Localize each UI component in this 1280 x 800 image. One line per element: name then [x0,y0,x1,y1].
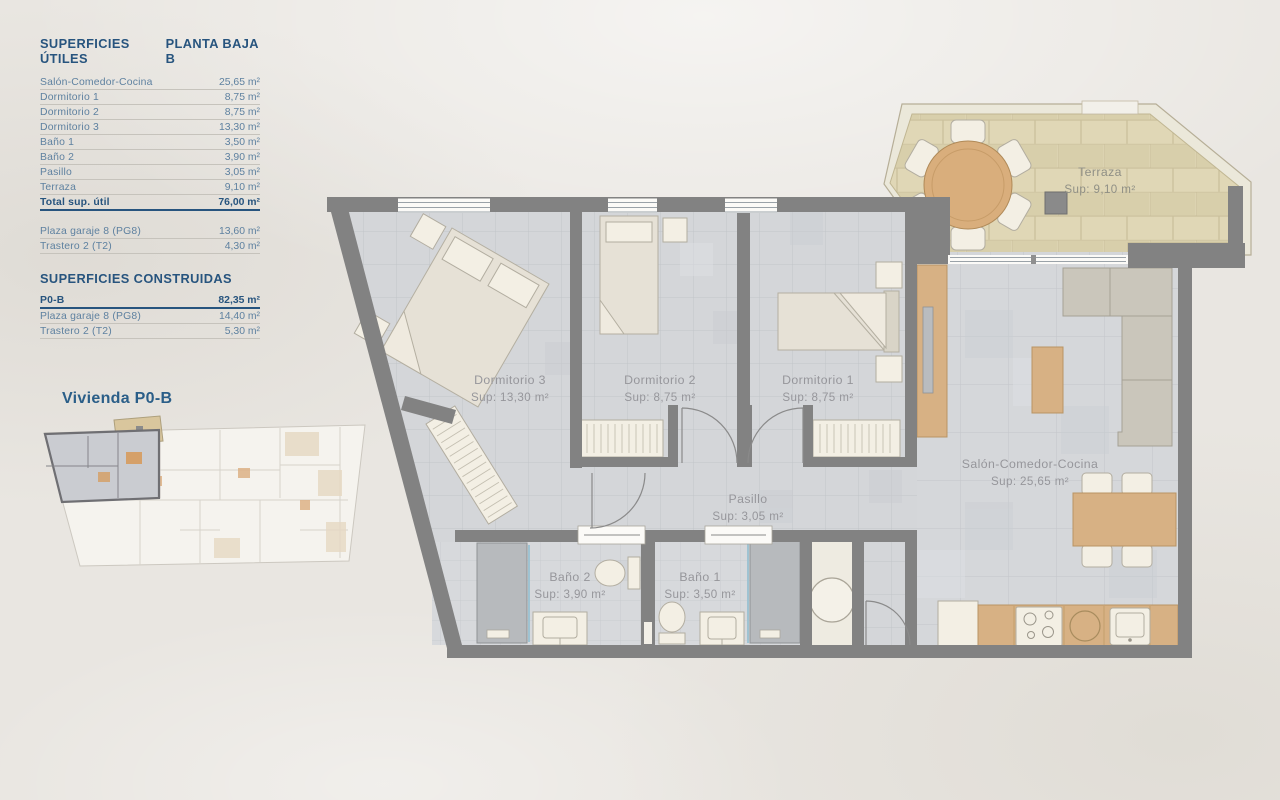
room-label-dormitorio1: Dormitorio 1 [782,373,854,387]
room-sup-salon: Sup: 25,65 m² [991,475,1069,488]
room-sup-bano1: Sup: 3,50 m² [664,588,735,601]
kitchen [938,601,1178,647]
toilet-bano2 [595,560,625,586]
wall-east [1178,252,1192,658]
wardrobe-dormitorio1 [813,420,900,457]
wall-terrace-south [1128,243,1245,268]
wall-dorm1-salon [905,210,917,467]
wall-entry-kitchen [905,530,917,658]
window-dorm3 [398,199,490,214]
toilet-tank-bano2 [628,557,640,589]
room-label-pasillo: Pasillo [728,492,767,506]
room-label-dormitorio2: Dormitorio 2 [624,373,696,387]
tall-cabinet [917,265,947,437]
room-sup-pasillo: Sup: 3,05 m² [712,510,783,523]
dining-table [1073,493,1176,546]
sliding-door-bano1 [705,526,772,544]
room-sup-dormitorio3: Sup: 13,30 m² [471,391,549,404]
floor-plan-svg: Terraza Sup: 9,10 m² Dormitorio 3 Sup: 1… [0,0,1280,800]
coffee-table [1032,347,1063,413]
wall-dorm3-dorm2 [570,210,582,468]
fridge [938,601,978,647]
room-label-bano2: Baño 2 [549,570,590,584]
room-sup-bano2: Sup: 3,90 m² [534,588,605,601]
wall-bano1-closet [800,530,812,658]
room-sup-terraza: Sup: 9,10 m² [1064,183,1135,196]
room-sup-dormitorio1: Sup: 8,75 m² [782,391,853,404]
room-label-dormitorio3: Dormitorio 3 [474,373,546,387]
window-dorm1 [725,199,777,214]
key-plan [44,416,365,566]
wall-terrace-east [1228,186,1243,246]
terrace-sliding-door [948,255,1128,264]
wall-dorm2-dorm1 [737,210,750,405]
cooktop [1016,607,1062,646]
wardrobe-dormitorio2 [580,420,663,457]
room-label-bano1: Baño 1 [679,570,720,584]
wall-south [447,645,1192,658]
wall-closet-entry [852,530,864,658]
sliding-door-bano2 [578,526,645,544]
room-label-terraza: Terraza [1078,165,1122,179]
shower-bano1 [750,540,800,643]
terrace-gate-opening [1082,101,1138,114]
window-dorm2 [608,199,657,214]
room-sup-dormitorio2: Sup: 8,75 m² [624,391,695,404]
water-heater [810,578,854,622]
shower-bano2 [477,543,527,643]
wall-bath-north [455,530,910,542]
room-label-salon: Salón-Comedor-Cocina [962,457,1099,471]
toilet-bano1 [659,602,685,632]
